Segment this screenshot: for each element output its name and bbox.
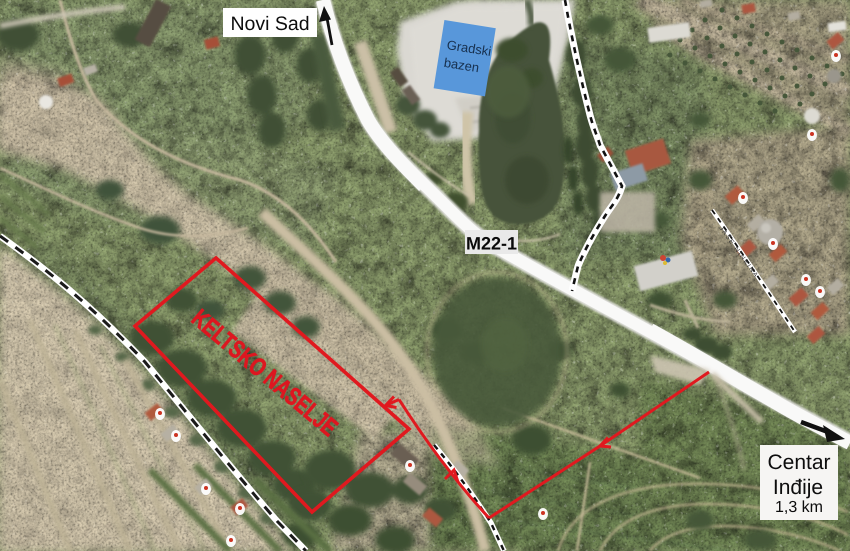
svg-text:M22-1: M22-1	[466, 234, 517, 254]
svg-text:Novi Sad: Novi Sad	[230, 13, 309, 35]
svg-text:Centar: Centar	[767, 451, 830, 474]
svg-text:1,3 km: 1,3 km	[775, 499, 823, 516]
svg-text:Inđije: Inđije	[773, 476, 823, 499]
